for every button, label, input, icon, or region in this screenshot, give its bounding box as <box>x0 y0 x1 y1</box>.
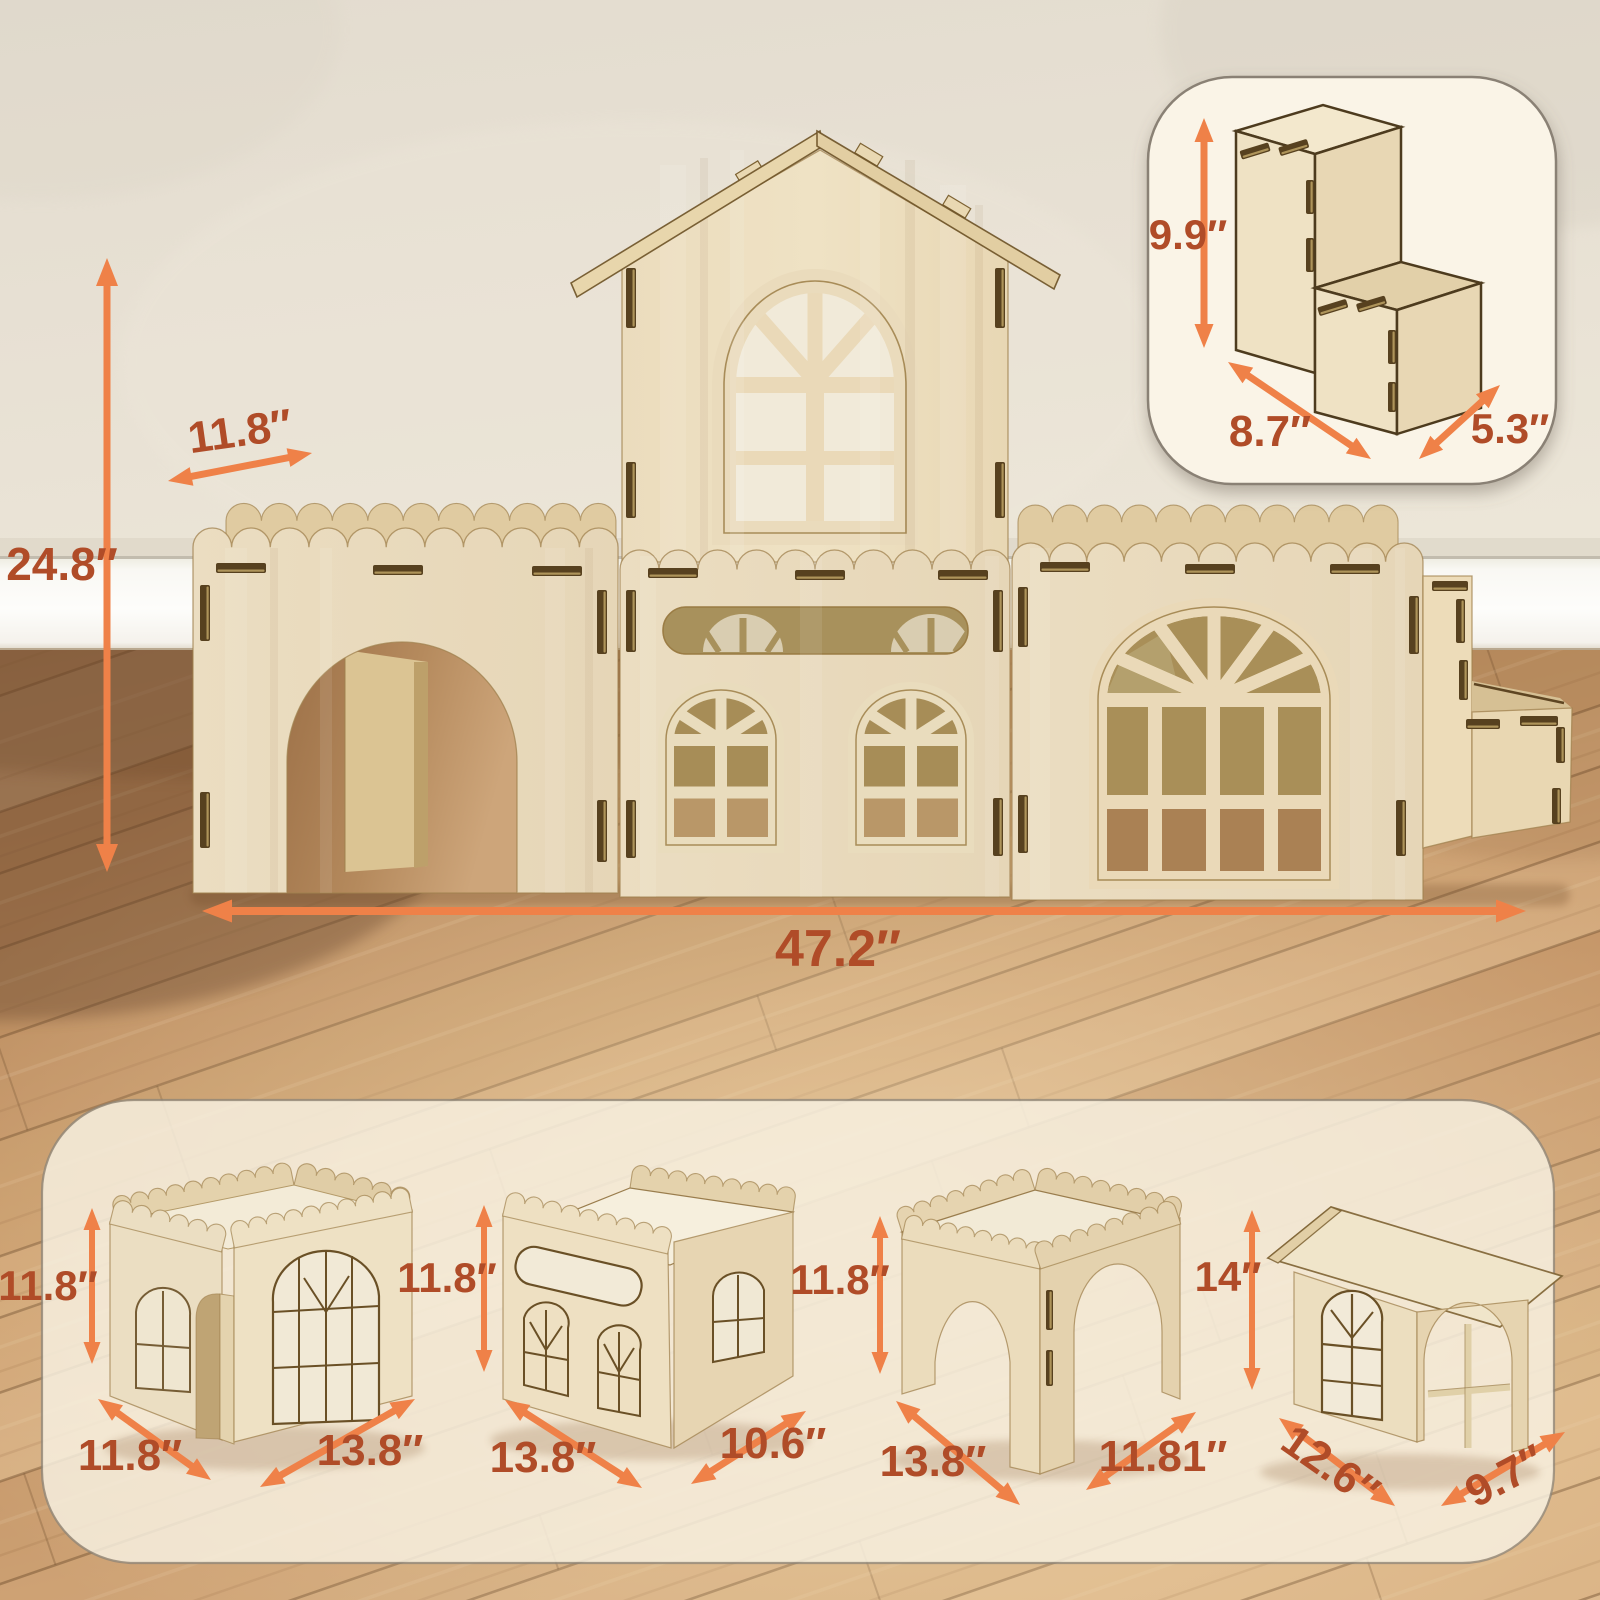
svg-text:11.8″: 11.8″ <box>0 1262 98 1309</box>
svg-text:10.6″: 10.6″ <box>720 1419 827 1468</box>
svg-text:11.81″: 11.81″ <box>1099 1432 1228 1481</box>
svg-text:11.8″: 11.8″ <box>790 1256 890 1303</box>
svg-text:5.3″: 5.3″ <box>1471 405 1550 452</box>
svg-text:11.8″: 11.8″ <box>78 1431 182 1480</box>
svg-text:11.8″: 11.8″ <box>397 1254 497 1301</box>
svg-text:13.8″: 13.8″ <box>880 1437 987 1486</box>
svg-text:13.8″: 13.8″ <box>490 1433 597 1482</box>
svg-text:8.7″: 8.7″ <box>1229 407 1311 456</box>
svg-text:13.8″: 13.8″ <box>317 1426 424 1475</box>
svg-text:14″: 14″ <box>1195 1253 1262 1300</box>
svg-text:47.2″: 47.2″ <box>775 920 901 978</box>
svg-text:9.9″: 9.9″ <box>1149 211 1228 258</box>
svg-text:24.8″: 24.8″ <box>6 538 118 590</box>
